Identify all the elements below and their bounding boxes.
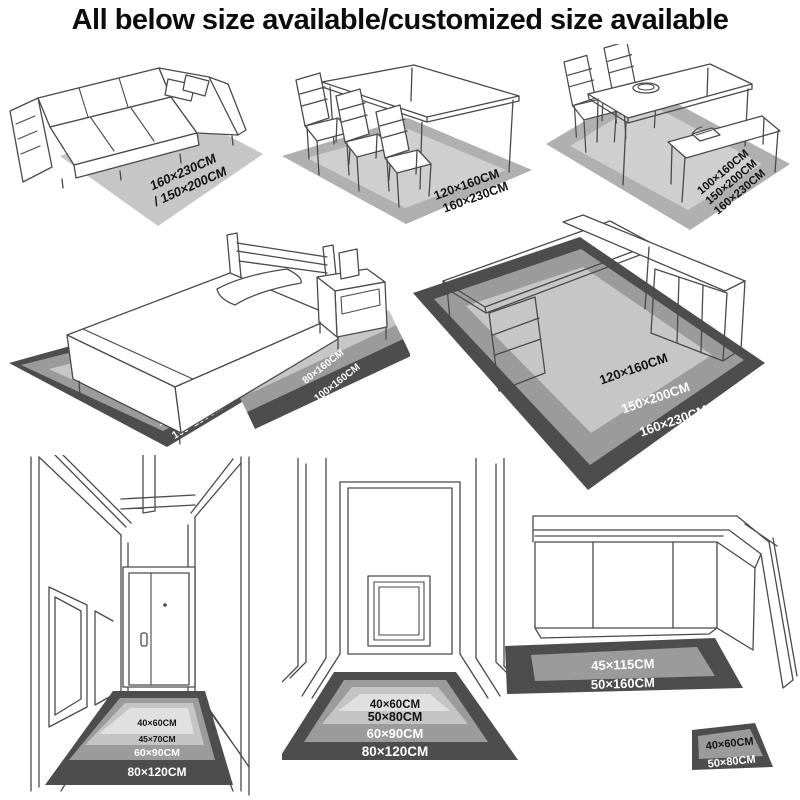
kitchen-runner-rug: 45×115CM 50×160CM	[505, 638, 743, 694]
rug-size-label: 60×90CM	[367, 726, 424, 741]
rug-size-label: 50×80CM	[368, 710, 423, 724]
corridor-scene-illustration: 40×60CM 50×80CM 60×90CM 80×120CM	[282, 458, 520, 798]
kitchen-scene-illustration: 45×115CM 50×160CM 40×60CM 50×80CM	[505, 480, 800, 800]
rug-size-label: 80×120CM	[127, 765, 186, 779]
wall-frame-drawing	[368, 576, 430, 646]
rug-size-label: 50×160CM	[591, 675, 655, 692]
door-peephole	[163, 603, 167, 607]
rug-size-label: 40×60CM	[137, 718, 176, 728]
door-drawing	[123, 567, 195, 687]
bedroom-scene-illustration: 80×160CM 150×200CM 160×230CM 50×160CM 80…	[5, 225, 410, 460]
corridor-rug: 40×60CM 50×80CM 60×90CM 80×120CM	[282, 672, 518, 760]
rug-size-label: 45×70CM	[138, 734, 175, 744]
box-on-nightstand	[339, 249, 359, 279]
product-size-infographic: All below size available/customized size…	[0, 0, 800, 800]
desk-scene-illustration: 120×160CM 150×200CM 160×230CM	[405, 213, 800, 498]
sofa-scene-illustration: 160×230CM / 150×200CM	[0, 48, 265, 240]
door-handle	[141, 633, 147, 646]
rug-size-label: 60×90CM	[134, 747, 180, 759]
page-title: All below size available/customized size…	[0, 4, 800, 37]
kitchen-mat-rug: 40×60CM 50×80CM	[692, 723, 773, 770]
hallway-rug: 40×60CM 45×70CM 60×90CM 80×120CM	[45, 691, 233, 785]
hallway-scene-illustration: 40×60CM 45×70CM 60×90CM 80×120CM	[25, 455, 255, 800]
rug-size-label: 80×120CM	[362, 744, 428, 759]
rug-size-label: 45×115CM	[591, 656, 655, 673]
